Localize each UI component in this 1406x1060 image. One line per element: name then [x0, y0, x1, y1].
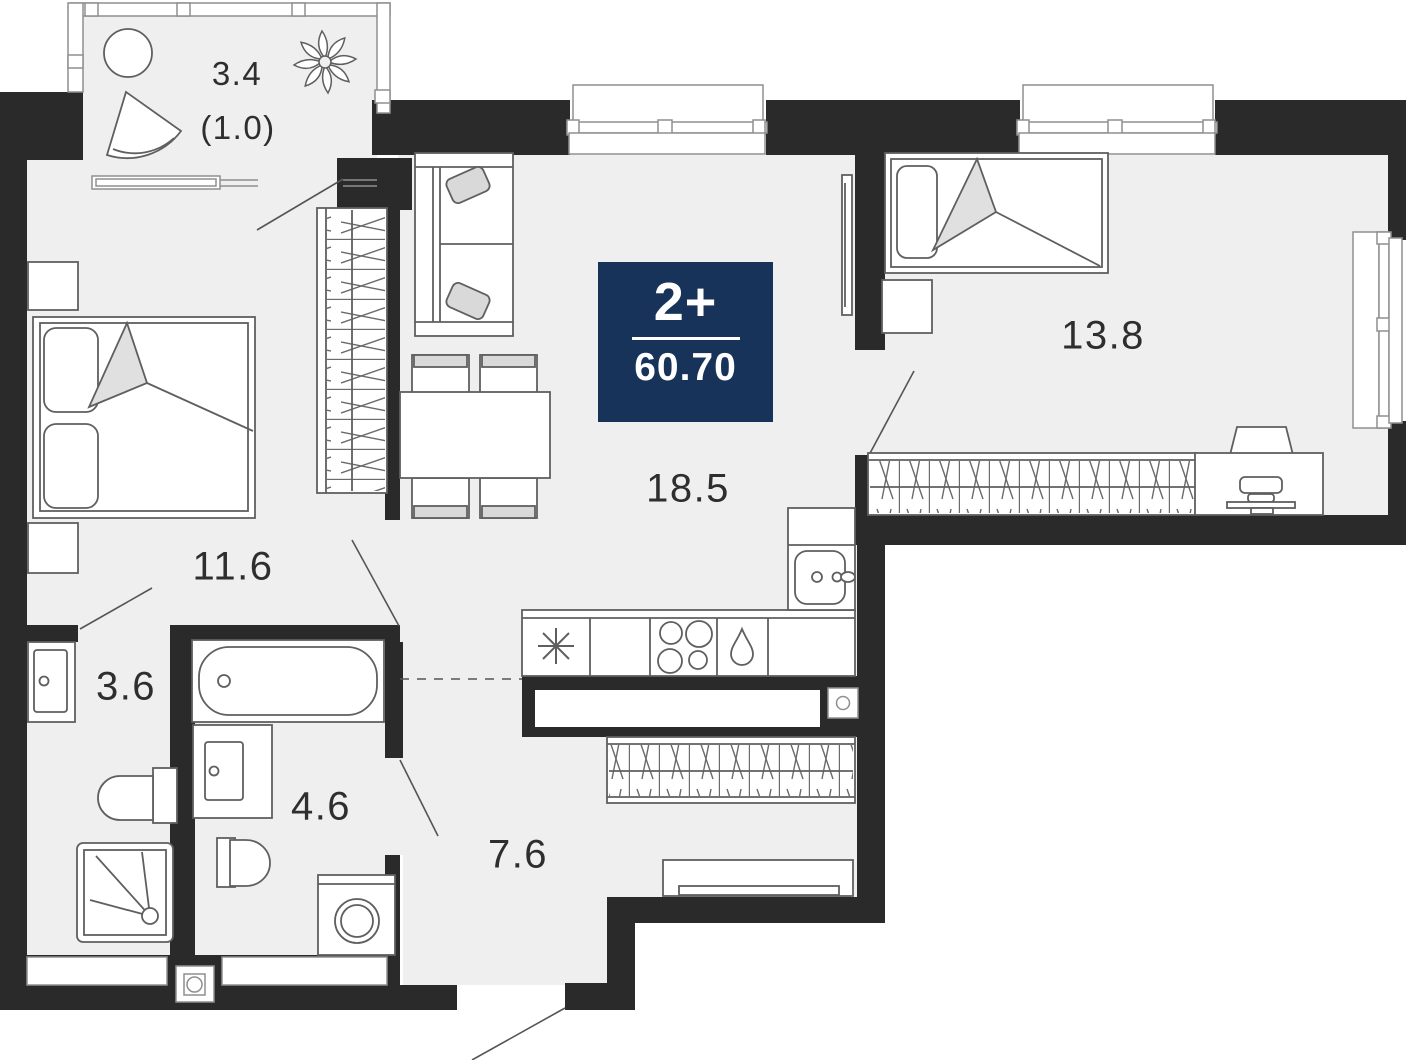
floor-plan-drawing	[0, 0, 1406, 1060]
floor-plan: 3.4 (1.0) 11.6 18.5 13.8 3.6 4.6 7.6 2+ …	[0, 0, 1406, 1060]
room-label-bathroom: 3.6	[96, 665, 156, 710]
balcony-table	[104, 29, 152, 77]
apartment-type-badge: 2+ 60.70	[598, 262, 773, 422]
window-bathroom-2	[222, 957, 387, 985]
shoe-bench	[663, 860, 853, 896]
desk-chair	[1230, 427, 1293, 455]
window-bedroom-2-right	[1353, 232, 1402, 428]
washing-machine	[318, 875, 395, 955]
fridge-icon	[538, 628, 574, 664]
room-label-balcony-coeff: (1.0)	[200, 109, 275, 147]
washbasin	[28, 642, 75, 722]
bed-single	[885, 153, 1108, 273]
washbasin	[193, 725, 272, 818]
wardrobe-bedroom-2	[868, 453, 1197, 515]
badge-total-area: 60.70	[598, 346, 773, 390]
sofa	[415, 153, 513, 336]
room-label-bedroom-2: 13.8	[1061, 314, 1145, 359]
service-box	[828, 688, 858, 718]
window-living	[567, 85, 767, 154]
room-label-bedroom: 11.6	[193, 545, 274, 590]
badge-rooms-count: 2+	[598, 272, 773, 332]
tv	[842, 175, 852, 315]
nightstand	[28, 523, 78, 573]
vent-box	[176, 966, 214, 1002]
room-label-bathroom-2: 4.6	[291, 785, 351, 830]
toilet	[217, 838, 270, 887]
nightstand	[882, 280, 932, 333]
room-label-balcony: 3.4	[212, 55, 262, 93]
desk	[1195, 453, 1323, 515]
door-swing-entrance	[472, 1008, 565, 1060]
room-label-living-kitchen: 18.5	[646, 467, 730, 512]
nightstand	[28, 262, 78, 310]
dining-chair	[480, 478, 537, 518]
kitchen-counter	[522, 610, 855, 676]
wardrobe-bedroom	[317, 208, 387, 493]
bed-double	[33, 317, 255, 518]
room-label-hallway: 7.6	[488, 833, 548, 878]
kitchen-sink	[788, 508, 855, 610]
coat-rack	[607, 737, 855, 803]
dining-chair	[480, 355, 537, 393]
dining-chair	[412, 478, 469, 518]
badge-divider	[632, 337, 740, 340]
dining-table	[400, 392, 550, 478]
shower	[77, 843, 173, 942]
bathtub	[192, 640, 384, 722]
dining-chair	[412, 355, 469, 393]
window-bathroom	[27, 957, 167, 985]
window-bedroom-2-top	[1017, 85, 1217, 154]
pass-through	[535, 690, 820, 727]
